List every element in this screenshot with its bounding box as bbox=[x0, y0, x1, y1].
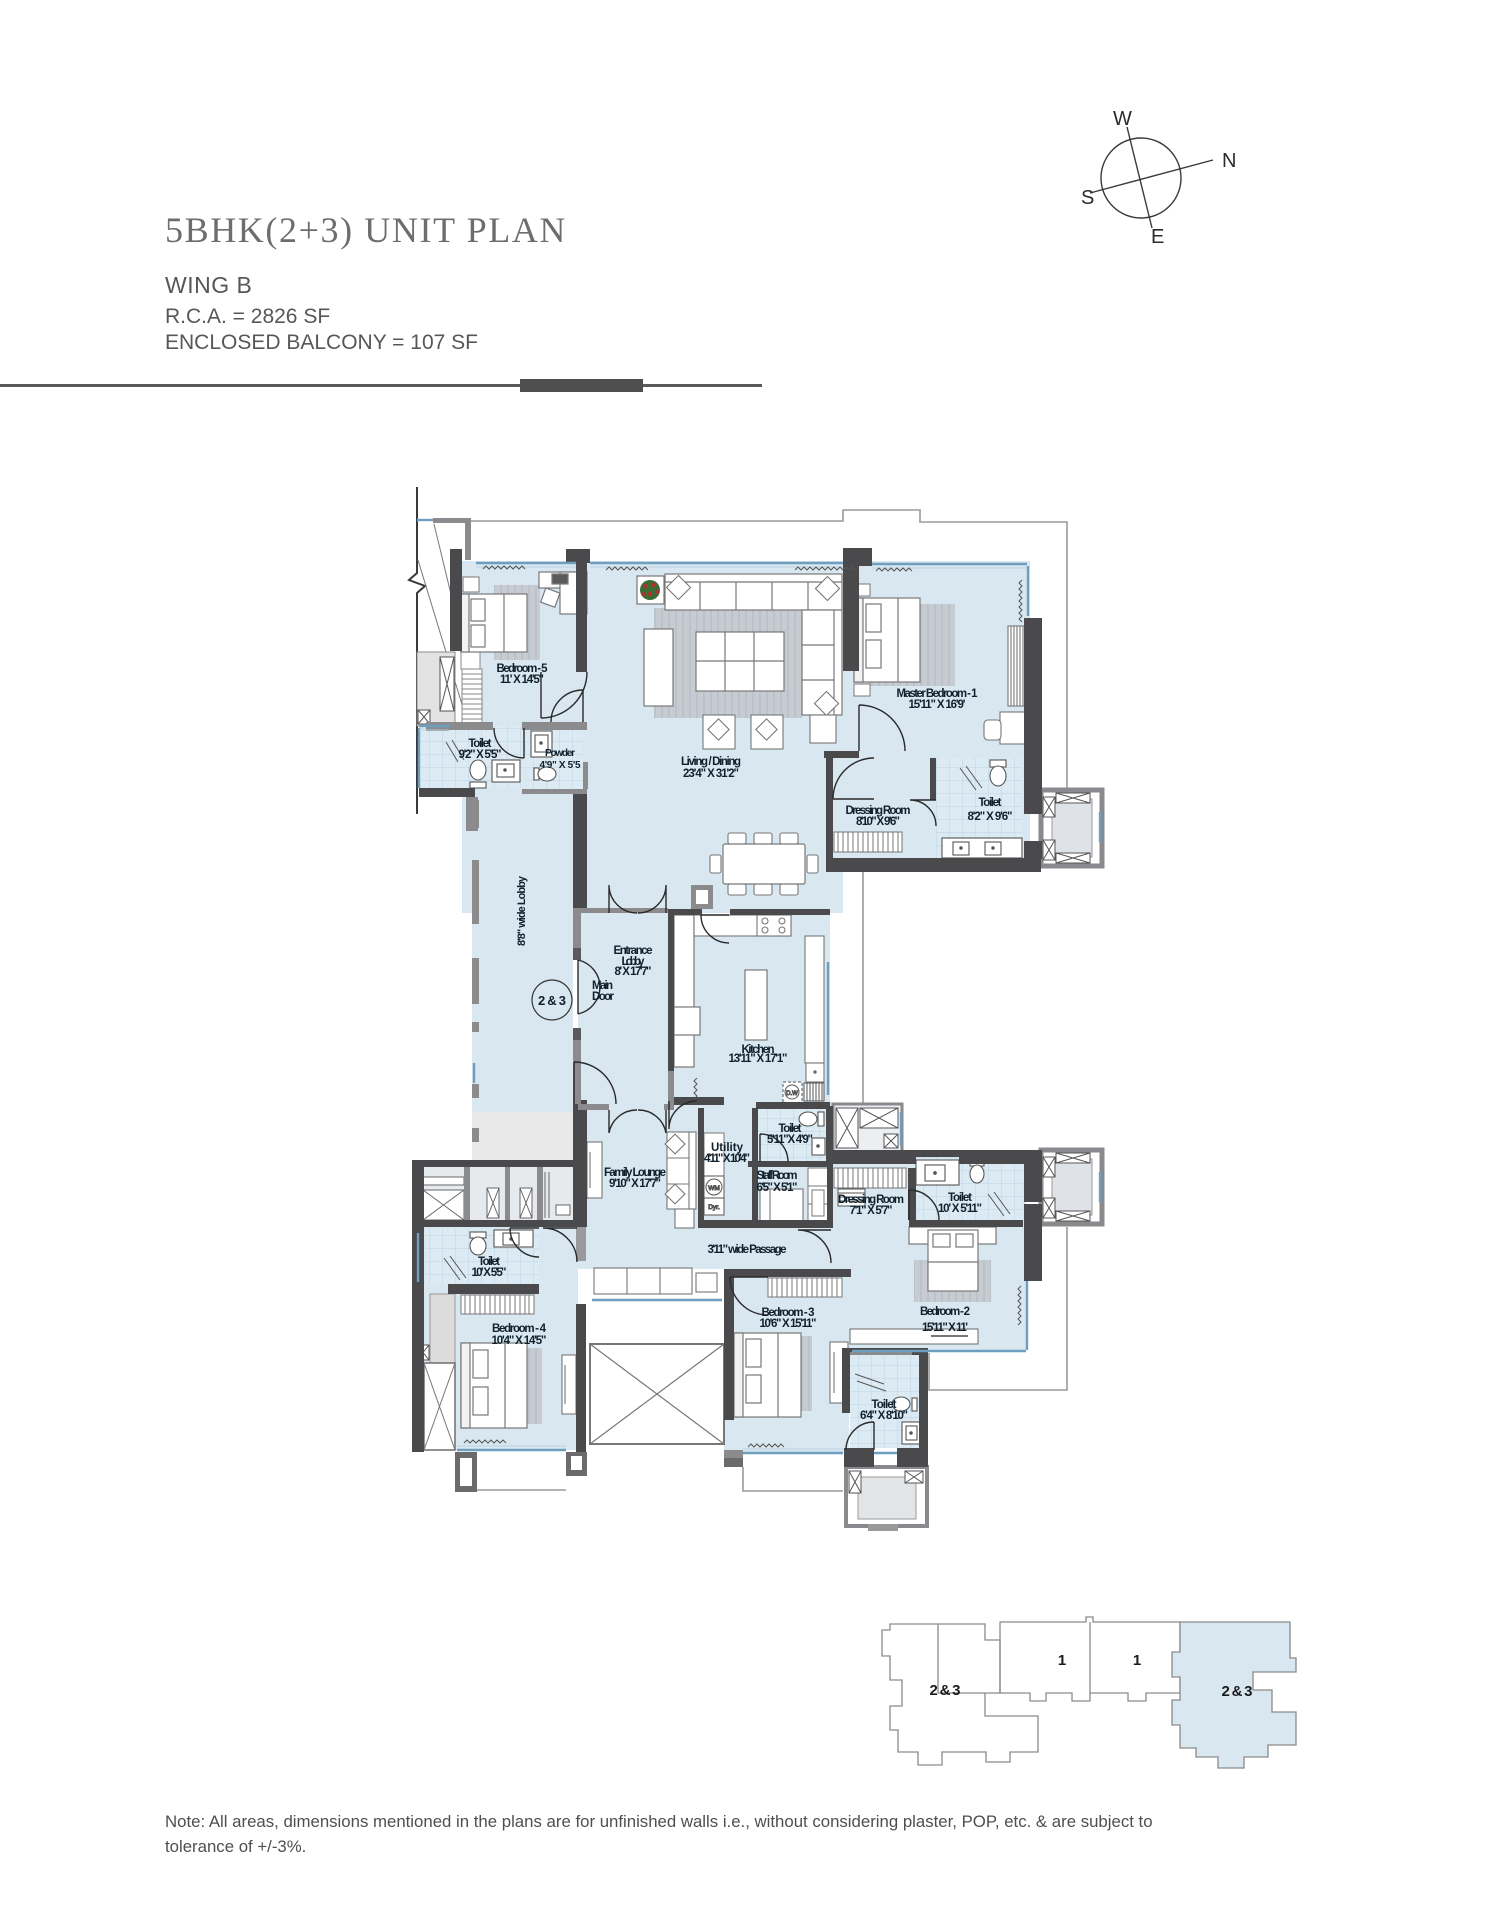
svg-text:8'8" wide Lobby: 8'8" wide Lobby bbox=[516, 875, 528, 946]
svg-text:3'11" wide Passage: 3'11" wide Passage bbox=[708, 1244, 787, 1256]
svg-text:13'11" X 17'1": 13'11" X 17'1" bbox=[729, 1053, 788, 1065]
svg-text:8' X 17'7": 8' X 17'7" bbox=[615, 966, 652, 978]
svg-text:4'11" X 10'4": 4'11" X 10'4" bbox=[704, 1153, 750, 1165]
svg-text:Bedroom - 2: Bedroom - 2 bbox=[920, 1306, 970, 1318]
svg-text:2 & 3: 2 & 3 bbox=[1222, 1683, 1253, 1700]
svg-text:Dyr.: Dyr. bbox=[708, 1204, 720, 1211]
svg-text:2 & 3: 2 & 3 bbox=[930, 1682, 961, 1699]
svg-text:Door: Door bbox=[592, 991, 615, 1003]
svg-text:Toilet: Toilet bbox=[979, 797, 1002, 809]
svg-text:Living / Dining: Living / Dining bbox=[681, 756, 741, 768]
svg-text:10'6" X 15'11": 10'6" X 15'11" bbox=[760, 1318, 817, 1330]
svg-text:Staff Room: Staff Room bbox=[757, 1170, 798, 1182]
svg-text:8'2" X 9'6": 8'2" X 9'6" bbox=[968, 811, 1013, 823]
svg-text:5'11"X 4'9": 5'11"X 4'9" bbox=[767, 1134, 813, 1146]
svg-text:W: W bbox=[1113, 108, 1132, 130]
svg-text:D.W: D.W bbox=[786, 1091, 798, 1097]
svg-text:8'10" X 9'6": 8'10" X 9'6" bbox=[856, 816, 900, 828]
svg-text:10' X 5'11": 10' X 5'11" bbox=[938, 1203, 982, 1215]
svg-text:7'1" X 5'7": 7'1" X 5'7" bbox=[850, 1205, 893, 1217]
svg-text:2 & 3: 2 & 3 bbox=[538, 993, 566, 1008]
svg-text:N: N bbox=[1222, 150, 1236, 172]
svg-text:E: E bbox=[1151, 226, 1164, 248]
svg-text:1: 1 bbox=[1133, 1652, 1141, 1669]
svg-text:4'9" X 5'5: 4'9" X 5'5 bbox=[540, 760, 581, 771]
svg-text:9'2" X 5'5": 9'2" X 5'5" bbox=[459, 749, 502, 761]
svg-text:6'5" X 5'1": 6'5" X 5'1" bbox=[757, 1182, 798, 1194]
svg-text:Bedroom - 4: Bedroom - 4 bbox=[492, 1323, 547, 1335]
svg-text:10' X 5'5": 10' X 5'5" bbox=[472, 1267, 507, 1279]
svg-text:WM: WM bbox=[708, 1185, 720, 1192]
svg-text:10'4" X 14'5": 10'4" X 14'5" bbox=[492, 1335, 547, 1347]
svg-text:23'4" X 31'2": 23'4" X 31'2" bbox=[683, 768, 739, 780]
svg-text:6'4" X 8'10": 6'4" X 8'10" bbox=[860, 1410, 908, 1422]
svg-text:15'11" X 11': 15'11" X 11' bbox=[922, 1322, 968, 1334]
svg-text:Powder: Powder bbox=[545, 748, 575, 759]
svg-text:11' X 14'5": 11' X 14'5" bbox=[500, 674, 544, 686]
svg-text:1: 1 bbox=[1058, 1652, 1066, 1669]
svg-text:S: S bbox=[1081, 187, 1094, 209]
svg-text:9'10" X 17'7": 9'10" X 17'7" bbox=[609, 1178, 661, 1190]
svg-text:15'11" X 16'9': 15'11" X 16'9' bbox=[909, 699, 966, 711]
